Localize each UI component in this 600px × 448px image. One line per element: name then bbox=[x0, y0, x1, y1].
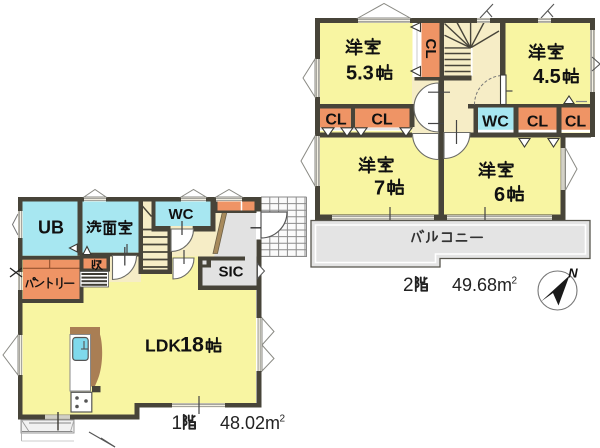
svg-text:CL: CL bbox=[565, 114, 587, 131]
svg-text:48.02m: 48.02m bbox=[220, 413, 280, 433]
svg-text:7: 7 bbox=[374, 178, 385, 200]
svg-text:2: 2 bbox=[280, 414, 286, 425]
svg-text:18: 18 bbox=[180, 333, 204, 357]
svg-text:CL: CL bbox=[422, 39, 439, 59]
svg-text:UB: UB bbox=[38, 218, 64, 238]
svg-text:SIC: SIC bbox=[218, 264, 243, 281]
svg-text:CL: CL bbox=[325, 112, 347, 129]
svg-text:2: 2 bbox=[512, 276, 518, 287]
svg-text:LDK: LDK bbox=[145, 336, 181, 356]
svg-text:5.3: 5.3 bbox=[346, 63, 374, 85]
svg-text:2: 2 bbox=[403, 275, 414, 296]
svg-text:WC: WC bbox=[169, 206, 194, 223]
svg-text:N: N bbox=[568, 266, 578, 281]
svg-text:6: 6 bbox=[494, 184, 505, 206]
svg-text:CL: CL bbox=[371, 112, 393, 129]
svg-text:WC: WC bbox=[482, 114, 509, 131]
svg-text:CL: CL bbox=[527, 114, 549, 131]
svg-text:1: 1 bbox=[172, 413, 183, 434]
svg-text:49.68m: 49.68m bbox=[452, 275, 512, 295]
svg-text:4.5: 4.5 bbox=[533, 66, 561, 88]
